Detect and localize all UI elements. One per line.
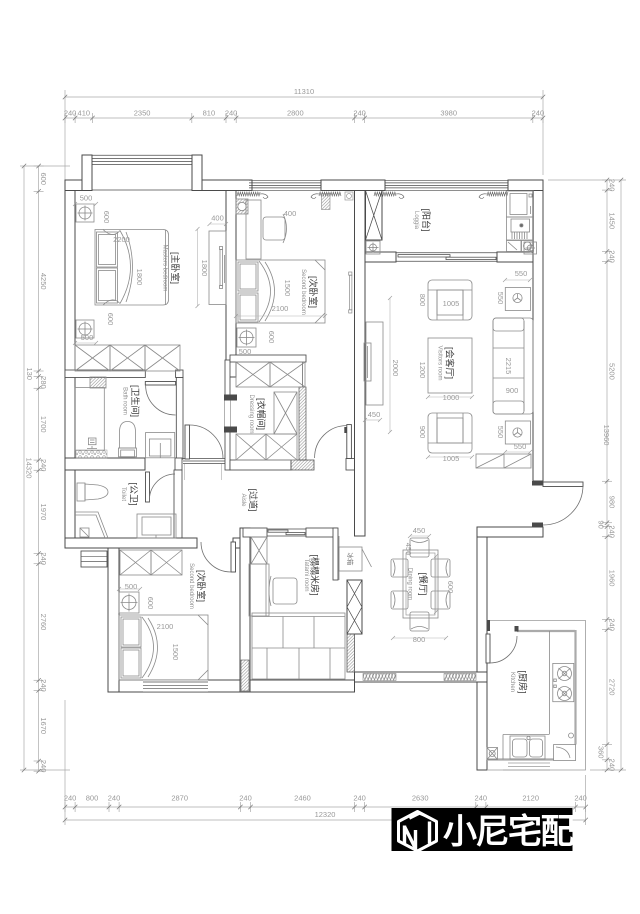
svg-text:240: 240 bbox=[39, 459, 48, 472]
svg-text:600: 600 bbox=[446, 581, 455, 594]
svg-text:1500: 1500 bbox=[171, 644, 180, 661]
svg-text:Masters bedroom: Masters bedroom bbox=[162, 245, 168, 292]
svg-text:2630: 2630 bbox=[412, 794, 429, 803]
svg-text:1670: 1670 bbox=[39, 717, 48, 734]
svg-text:800: 800 bbox=[413, 635, 426, 644]
svg-text:2100: 2100 bbox=[157, 622, 174, 631]
svg-text:2460: 2460 bbox=[294, 794, 311, 803]
svg-text:600: 600 bbox=[146, 597, 155, 610]
svg-text:11310: 11310 bbox=[294, 87, 314, 96]
svg-text:550: 550 bbox=[514, 442, 527, 451]
svg-text:Second bedroom: Second bedroom bbox=[188, 563, 194, 609]
svg-text:Kitchen: Kitchen bbox=[509, 672, 515, 692]
svg-text:1970: 1970 bbox=[39, 504, 48, 521]
svg-text:2760: 2760 bbox=[39, 614, 48, 631]
svg-text:[会客厅]: [会客厅] bbox=[445, 347, 456, 379]
svg-text:980: 980 bbox=[608, 496, 617, 509]
svg-text:2100: 2100 bbox=[272, 304, 289, 313]
svg-text:810: 810 bbox=[203, 109, 216, 118]
svg-text:1700: 1700 bbox=[39, 416, 48, 433]
svg-text:13960: 13960 bbox=[602, 425, 611, 446]
svg-text:360: 360 bbox=[597, 746, 606, 759]
svg-text:600: 600 bbox=[102, 211, 111, 224]
svg-text:[阳台]: [阳台] bbox=[421, 208, 432, 231]
svg-text:[厨房]: [厨房] bbox=[518, 670, 529, 693]
svg-text:[衣帽间]: [衣帽间] bbox=[256, 398, 267, 430]
svg-text:600: 600 bbox=[267, 331, 276, 344]
svg-text:400: 400 bbox=[284, 209, 297, 218]
svg-text:2200: 2200 bbox=[113, 235, 130, 244]
svg-text:240: 240 bbox=[608, 525, 617, 538]
svg-text:240: 240 bbox=[608, 618, 617, 631]
svg-text:[次卧室]: [次卧室] bbox=[308, 276, 319, 308]
svg-text:Loggia: Loggia bbox=[413, 211, 419, 230]
svg-text:1005: 1005 bbox=[443, 299, 460, 308]
svg-text:900: 900 bbox=[418, 426, 427, 439]
svg-text:800: 800 bbox=[418, 294, 427, 307]
svg-text:240: 240 bbox=[608, 759, 617, 772]
svg-text:1000: 1000 bbox=[443, 393, 460, 402]
svg-text:240: 240 bbox=[353, 794, 366, 803]
svg-text:Bath room: Bath room bbox=[122, 387, 128, 415]
svg-text:400: 400 bbox=[211, 214, 224, 223]
svg-text:Second bedroom: Second bedroom bbox=[300, 269, 306, 315]
svg-text:Tatami room: Tatami room bbox=[303, 558, 309, 591]
svg-text:1200: 1200 bbox=[418, 362, 427, 379]
svg-text:2120: 2120 bbox=[522, 794, 539, 803]
svg-text:500: 500 bbox=[80, 194, 93, 203]
svg-text:2000: 2000 bbox=[391, 360, 400, 377]
svg-text:2720: 2720 bbox=[608, 679, 617, 696]
svg-text:240: 240 bbox=[64, 109, 77, 118]
svg-text:500: 500 bbox=[239, 347, 252, 356]
svg-text:2870: 2870 bbox=[171, 794, 188, 803]
svg-text:90: 90 bbox=[597, 520, 606, 528]
svg-text:冰箱: 冰箱 bbox=[346, 553, 355, 567]
svg-text:450: 450 bbox=[404, 543, 413, 556]
svg-text:240: 240 bbox=[353, 109, 366, 118]
svg-text:小尼宅配: 小尼宅配 bbox=[443, 812, 574, 851]
svg-text:[次卧室]: [次卧室] bbox=[196, 570, 207, 602]
svg-text:600: 600 bbox=[106, 313, 115, 326]
svg-text:[主卧室]: [主卧室] bbox=[170, 252, 181, 284]
svg-text:240: 240 bbox=[608, 179, 617, 192]
svg-text:410: 410 bbox=[78, 109, 91, 118]
svg-text:[过道]: [过道] bbox=[248, 488, 259, 511]
svg-text:[榻榻米房]: [榻榻米房] bbox=[310, 554, 321, 595]
svg-text:450: 450 bbox=[413, 526, 426, 535]
svg-text:2350: 2350 bbox=[134, 109, 151, 118]
svg-text:550: 550 bbox=[515, 269, 528, 278]
svg-text:240: 240 bbox=[108, 794, 121, 803]
svg-text:550: 550 bbox=[496, 292, 505, 305]
svg-text:4250: 4250 bbox=[39, 273, 48, 290]
svg-text:550: 550 bbox=[496, 426, 505, 439]
svg-text:240: 240 bbox=[39, 552, 48, 565]
svg-text:240: 240 bbox=[532, 109, 545, 118]
svg-text:1450: 1450 bbox=[608, 212, 617, 229]
svg-text:Visitors room: Visitors room bbox=[437, 346, 443, 381]
svg-text:14320: 14320 bbox=[25, 458, 34, 479]
svg-text:240: 240 bbox=[39, 679, 48, 692]
svg-text:240: 240 bbox=[64, 794, 77, 803]
svg-text:450: 450 bbox=[368, 410, 381, 419]
svg-text:240: 240 bbox=[225, 109, 238, 118]
svg-text:130: 130 bbox=[25, 367, 34, 380]
svg-text:12320: 12320 bbox=[315, 810, 336, 819]
svg-text:900: 900 bbox=[506, 386, 519, 395]
svg-text:[卫生间]: [卫生间] bbox=[130, 385, 141, 417]
svg-text:1960: 1960 bbox=[608, 570, 617, 587]
svg-text:240: 240 bbox=[475, 794, 488, 803]
svg-text:240: 240 bbox=[239, 794, 252, 803]
svg-text:Toilet: Toilet bbox=[120, 487, 126, 501]
svg-text:800: 800 bbox=[86, 794, 99, 803]
svg-text:1005: 1005 bbox=[443, 454, 460, 463]
svg-text:Aisle: Aisle bbox=[240, 493, 246, 507]
svg-text:2215: 2215 bbox=[504, 358, 513, 375]
svg-text:[公卫]: [公卫] bbox=[129, 482, 139, 505]
svg-text:5200: 5200 bbox=[608, 363, 617, 380]
svg-text:240: 240 bbox=[39, 760, 48, 773]
svg-text:1800: 1800 bbox=[200, 260, 209, 277]
svg-text:600: 600 bbox=[39, 172, 48, 185]
svg-text:240: 240 bbox=[608, 250, 617, 263]
svg-text:240: 240 bbox=[574, 794, 587, 803]
svg-text:1800: 1800 bbox=[135, 269, 144, 286]
svg-text:500: 500 bbox=[125, 582, 138, 591]
svg-text:[餐厅]: [餐厅] bbox=[418, 572, 429, 595]
svg-text:1500: 1500 bbox=[283, 280, 292, 297]
svg-text:3980: 3980 bbox=[440, 109, 457, 118]
svg-text:500: 500 bbox=[81, 333, 94, 342]
svg-text:2800: 2800 bbox=[287, 109, 304, 118]
svg-text:Dining room: Dining room bbox=[407, 568, 413, 600]
svg-text:280: 280 bbox=[39, 376, 48, 389]
svg-text:Dressing room: Dressing room bbox=[248, 394, 254, 433]
